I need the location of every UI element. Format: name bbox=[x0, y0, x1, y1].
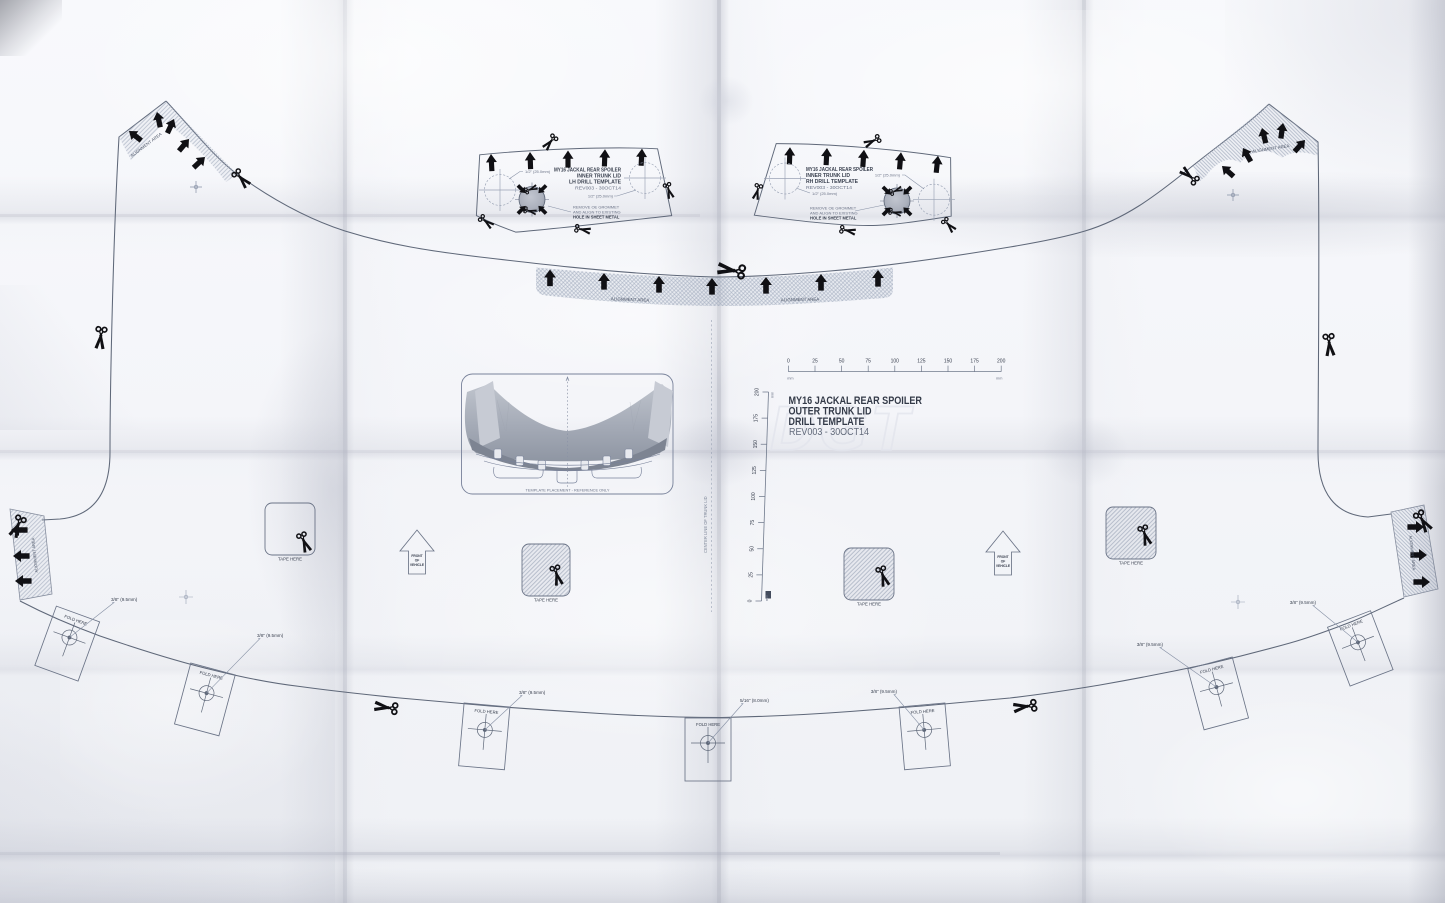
svg-text:OF: OF bbox=[415, 559, 420, 563]
svg-text:75: 75 bbox=[865, 359, 871, 365]
svg-text:125: 125 bbox=[917, 359, 926, 365]
svg-text:150: 150 bbox=[944, 359, 953, 365]
svg-text:125: 125 bbox=[752, 466, 758, 475]
svg-text:1/2” (25.0mm): 1/2” (25.0mm) bbox=[588, 194, 614, 199]
svg-text:mm: mm bbox=[996, 377, 1002, 381]
svg-text:FOLD HERE: FOLD HERE bbox=[474, 708, 499, 715]
svg-text:OF: OF bbox=[1001, 560, 1006, 564]
svg-text:1/2” (25.0mm): 1/2” (25.0mm) bbox=[875, 173, 901, 178]
svg-text:mm: mm bbox=[771, 392, 775, 398]
svg-text:FOLD HERE: FOLD HERE bbox=[64, 614, 88, 627]
svg-text:TAPE HERE: TAPE HERE bbox=[1119, 561, 1143, 566]
svg-text:ALIGNMENT AREA: ALIGNMENT AREA bbox=[781, 297, 820, 303]
svg-text:3/8” (9.5mm): 3/8” (9.5mm) bbox=[257, 633, 284, 638]
svg-text:FRONT: FRONT bbox=[997, 555, 1008, 559]
svg-text:175: 175 bbox=[754, 414, 760, 423]
svg-text:75: 75 bbox=[750, 520, 756, 526]
svg-text:TEMPLATE PLACEMENT - REFERENCE: TEMPLATE PLACEMENT - REFERENCE ONLY bbox=[526, 488, 610, 493]
svg-text:0: 0 bbox=[787, 359, 790, 365]
svg-text:TAPE HERE: TAPE HERE bbox=[278, 557, 302, 562]
svg-text:150: 150 bbox=[753, 440, 759, 449]
svg-text:0: 0 bbox=[748, 599, 754, 602]
svg-text:FOLD HERE: FOLD HERE bbox=[696, 722, 720, 727]
svg-text:CENTER LINE OF TRUNK LID: CENTER LINE OF TRUNK LID bbox=[703, 496, 708, 553]
svg-text:RH DRILL TEMPLATE: RH DRILL TEMPLATE bbox=[806, 179, 859, 185]
svg-text:50: 50 bbox=[749, 546, 755, 552]
svg-text:REV003 - 30OCT14: REV003 - 30OCT14 bbox=[575, 186, 621, 192]
svg-text:1/2” (25.0mm): 1/2” (25.0mm) bbox=[812, 191, 838, 196]
svg-text:5/16” (8.0mm): 5/16” (8.0mm) bbox=[740, 698, 769, 703]
svg-text:100: 100 bbox=[751, 492, 757, 501]
svg-text:FOLD HERE: FOLD HERE bbox=[910, 708, 935, 715]
svg-text:HOLE IN SHEET METAL: HOLE IN SHEET METAL bbox=[573, 215, 620, 220]
svg-text:1/2” (25.0mm): 1/2” (25.0mm) bbox=[525, 169, 551, 174]
svg-text:mm: mm bbox=[787, 377, 793, 381]
svg-text:LH DRILL TEMPLATE: LH DRILL TEMPLATE bbox=[569, 180, 622, 186]
svg-text:TAPE HERE: TAPE HERE bbox=[857, 602, 881, 607]
svg-text:TAPE HERE: TAPE HERE bbox=[534, 598, 558, 603]
svg-text:mm: mm bbox=[765, 595, 769, 601]
svg-text:3/8” (9.5mm): 3/8” (9.5mm) bbox=[111, 597, 138, 602]
svg-text:175: 175 bbox=[970, 359, 979, 365]
svg-text:VEHICLE: VEHICLE bbox=[996, 564, 1011, 568]
svg-text:200: 200 bbox=[755, 388, 761, 397]
svg-text:25: 25 bbox=[812, 359, 818, 365]
svg-text:50: 50 bbox=[839, 359, 845, 365]
svg-text:25: 25 bbox=[748, 572, 754, 578]
svg-text:REV003 - 30OCT14: REV003 - 30OCT14 bbox=[789, 427, 869, 438]
svg-text:VEHICLE: VEHICLE bbox=[410, 563, 425, 567]
svg-text:3/8” (9.5mm): 3/8” (9.5mm) bbox=[1137, 642, 1164, 647]
svg-text:3/8” (9.5mm): 3/8” (9.5mm) bbox=[519, 690, 546, 695]
svg-text:FRONT: FRONT bbox=[411, 554, 422, 558]
svg-text:100: 100 bbox=[891, 359, 900, 365]
svg-text:3/8” (9.5mm): 3/8” (9.5mm) bbox=[871, 689, 898, 694]
svg-text:HOLE IN SHEET METAL: HOLE IN SHEET METAL bbox=[810, 216, 857, 221]
svg-text:200: 200 bbox=[997, 359, 1006, 365]
svg-text:3/8” (9.5mm): 3/8” (9.5mm) bbox=[1290, 600, 1317, 605]
